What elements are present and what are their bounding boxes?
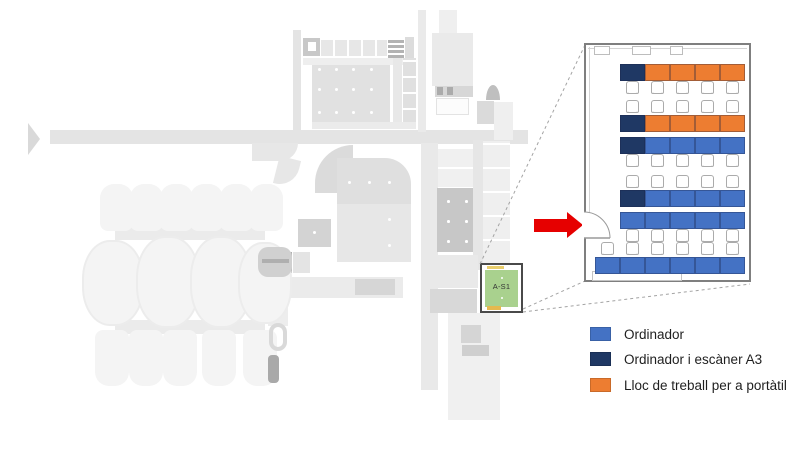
chair-icon (701, 81, 714, 94)
desk-orange (695, 115, 720, 132)
desk-blue (695, 137, 720, 154)
plan-blob (202, 330, 236, 386)
desk-blue (695, 190, 720, 207)
legend-item-escaner: Ordinador i escàner A3 (590, 349, 762, 369)
red-arrow-head (567, 212, 583, 238)
plan-building (337, 204, 411, 262)
room-label: A-S1 (482, 282, 521, 291)
desk-navy (620, 137, 645, 154)
plan-dome (486, 85, 500, 100)
chair-icon (626, 100, 639, 113)
chair-icon (651, 100, 664, 113)
detail-room-wall-detail (589, 47, 590, 212)
plan-ring (269, 323, 287, 351)
plan-gate (258, 247, 292, 277)
desk-navy (620, 190, 645, 207)
plan-block (477, 101, 494, 124)
plan-accent (461, 325, 481, 343)
plan-band (303, 58, 403, 65)
desk-blue (695, 257, 720, 274)
plan-blob (129, 330, 163, 386)
plan-blob (250, 184, 283, 231)
chair-icon (651, 242, 664, 255)
chair-icon (626, 242, 639, 255)
plan-blob (160, 184, 193, 231)
legend-label: Lloc de treball per a portàtil (624, 378, 787, 393)
legend: Ordinador Ordinador i escàner A3 Lloc de… (590, 316, 800, 404)
plan-main-corridor (50, 130, 528, 144)
plan-room-strip (321, 40, 387, 56)
desk-blue (645, 212, 670, 229)
desk-blue (595, 257, 620, 274)
desk-blue (620, 257, 645, 274)
door-opening (582, 212, 586, 238)
desk-blue (645, 137, 670, 154)
chair-icon (626, 81, 639, 94)
plan-blob (100, 184, 133, 231)
desk-orange (645, 64, 670, 81)
slide-canvas: A-S1 Ordinador Ordinador i escàner A (0, 0, 800, 450)
desk-orange (645, 115, 670, 132)
detail-room (584, 43, 751, 282)
desk-navy (620, 115, 645, 132)
chair-icon (701, 175, 714, 188)
plan-block (494, 102, 513, 140)
plan-block (432, 33, 473, 86)
plan-blob (220, 184, 253, 231)
desk-blue (670, 190, 695, 207)
plan-blob (163, 330, 197, 386)
chair-icon (651, 175, 664, 188)
plan-strip (393, 58, 402, 124)
chair-icon (676, 154, 689, 167)
chair-icon (651, 229, 664, 242)
plan-strip-dark (435, 86, 473, 97)
plan-stairs (388, 38, 404, 58)
detail-room-pillar (670, 46, 683, 55)
desk-orange (670, 64, 695, 81)
chair-icon (676, 242, 689, 255)
chair-icon (676, 175, 689, 188)
plan-corridor-narrow (473, 140, 483, 270)
chair-icon (726, 242, 739, 255)
desk-blue (645, 190, 670, 207)
plan-blob-large (82, 240, 144, 326)
highlighted-room-a-s1: A-S1 (480, 263, 523, 313)
legend-swatch-navy (590, 352, 611, 366)
plan-block (293, 252, 310, 273)
desk-blue (720, 257, 745, 274)
chair-icon (701, 154, 714, 167)
chair-icon (651, 154, 664, 167)
chair-icon (701, 100, 714, 113)
plan-corridor-vertical-2 (418, 10, 426, 132)
chair-icon (626, 229, 639, 242)
plan-block (430, 289, 477, 313)
desk-orange (695, 64, 720, 81)
plan-block-dark (303, 38, 320, 56)
plan-block-dark (268, 355, 279, 383)
legend-item-portatil: Lloc de treball per a portàtil (590, 375, 787, 395)
desk-blue (645, 257, 670, 274)
plan-accent (462, 345, 489, 356)
desk-orange (720, 64, 745, 81)
legend-label: Ordinador (624, 327, 684, 342)
chair-icon (676, 81, 689, 94)
room-yellow-mark-top (487, 266, 504, 269)
detail-room-wall-detail (588, 48, 747, 49)
desk-blue (670, 137, 695, 154)
chair-icon (726, 175, 739, 188)
plan-block (439, 10, 457, 33)
desk-blue (620, 212, 645, 229)
chair-icon (701, 229, 714, 242)
plan-block (405, 37, 414, 58)
chair-icon (601, 242, 614, 255)
desk-navy (620, 64, 645, 81)
plan-round-building (337, 158, 411, 204)
room-yellow-mark-bottom (487, 306, 501, 310)
chair-icon (626, 154, 639, 167)
chair-icon (726, 154, 739, 167)
plan-blob (190, 184, 223, 231)
detail-room-closet (594, 46, 610, 55)
chair-icon (701, 242, 714, 255)
chair-icon (676, 229, 689, 242)
plan-base-accent (355, 279, 395, 295)
chair-icon (726, 81, 739, 94)
desk-blue (670, 212, 695, 229)
desk-blue (720, 212, 745, 229)
plan-blob (130, 184, 163, 231)
chair-icon (676, 100, 689, 113)
desk-blue (720, 190, 745, 207)
plan-dark-hall (437, 188, 475, 252)
plan-big-hall (312, 65, 390, 122)
desk-blue (695, 212, 720, 229)
legend-swatch-blue (590, 327, 611, 341)
desk-orange (670, 115, 695, 132)
desk-blue (670, 257, 695, 274)
plan-blob (95, 330, 129, 386)
chair-icon (626, 175, 639, 188)
plan-block (430, 255, 478, 288)
plan-corridor-vertical (293, 30, 301, 131)
detail-room-pillar (632, 46, 651, 55)
plan-entrance-arrow (28, 123, 40, 155)
chair-icon (651, 81, 664, 94)
legend-label: Ordinador i escàner A3 (624, 352, 762, 367)
desk-blue (720, 137, 745, 154)
plan-rooms (483, 141, 510, 263)
plan-small-rooms (403, 58, 416, 124)
desk-orange (720, 115, 745, 132)
legend-swatch-orange (590, 378, 611, 392)
red-arrow-shaft (534, 219, 568, 232)
plan-block-mid (298, 219, 331, 247)
plan-rooms (438, 147, 476, 187)
plan-white-room (436, 98, 469, 115)
chair-icon (726, 100, 739, 113)
legend-item-ordinador: Ordinador (590, 324, 684, 344)
plan-band (312, 122, 416, 129)
chair-icon (726, 229, 739, 242)
